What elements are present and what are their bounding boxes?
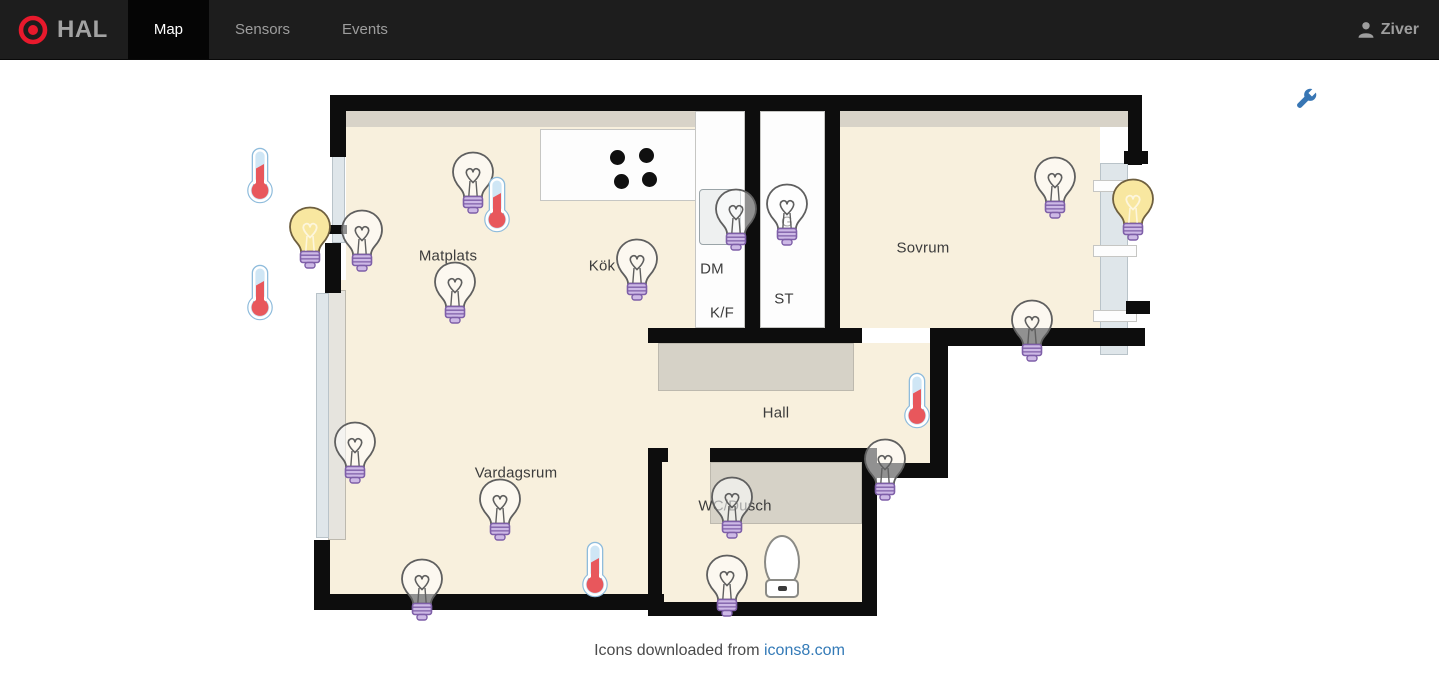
light-off-icon[interactable] [339,209,385,278]
tab-events[interactable]: Events [316,0,414,59]
thermometer-icon[interactable] [581,541,609,604]
room-label-kök: Kök [589,258,615,275]
credits-text: Icons downloaded from [594,642,759,659]
floorplan: MatplatsKökDMK/FSTGSovrumHallVardagsrumW… [240,85,1160,630]
map-settings-button[interactable] [1293,86,1319,112]
map-page: MatplatsKökDMK/FSTGSovrumHallVardagsrumW… [0,60,1439,674]
user-menu[interactable]: Ziver [1337,0,1439,59]
tab-map[interactable]: Map [128,0,209,59]
credits: Icons downloaded from icons8.com [0,642,1439,660]
navbar-spacer [414,0,1337,59]
room-label-sovrum: Sovrum [897,240,950,257]
target-logo-icon [18,15,48,45]
room-label-st: ST [774,291,794,308]
light-off-icon[interactable] [862,438,908,507]
user-icon [1357,21,1375,38]
wrench-icon [1293,86,1319,112]
light-off-icon[interactable] [709,476,755,545]
nav-tabs: Map Sensors Events [128,0,414,59]
thermometer-icon[interactable] [246,264,274,327]
light-off-icon[interactable] [1032,156,1078,225]
light-off-icon[interactable] [332,421,378,490]
thermometer-icon[interactable] [903,372,931,435]
brand[interactable]: HAL [0,0,128,59]
room-label-dm: DM [700,261,724,278]
light-off-icon[interactable] [477,478,523,547]
light-off-icon[interactable] [1009,299,1055,368]
tab-sensors[interactable]: Sensors [209,0,316,59]
navbar: HAL Map Sensors Events Ziver [0,0,1439,60]
light-on-icon[interactable] [1110,178,1156,247]
light-off-icon[interactable] [704,554,750,623]
light-off-icon[interactable] [614,238,660,307]
light-on-icon[interactable] [287,206,333,275]
devices-layer [240,85,1160,630]
room-label-hall: Hall [763,405,790,422]
light-off-icon[interactable] [713,188,759,257]
user-name: Ziver [1381,21,1419,39]
brand-title: HAL [57,16,108,44]
icons8-link[interactable]: icons8.com [764,642,845,659]
room-label-k-f: K/F [710,305,734,322]
light-off-icon[interactable] [764,183,810,252]
thermometer-icon[interactable] [246,147,274,210]
light-off-icon[interactable] [399,558,445,627]
thermometer-icon[interactable] [483,176,511,239]
light-off-icon[interactable] [432,261,478,330]
